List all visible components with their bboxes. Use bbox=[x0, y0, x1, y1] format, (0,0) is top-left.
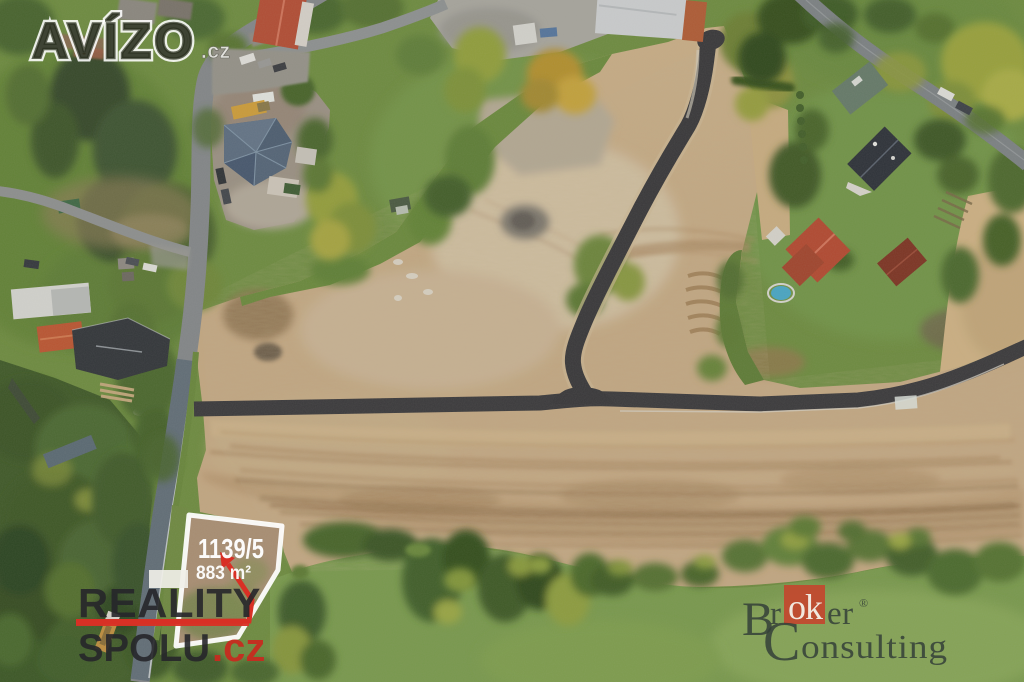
svg-text:AVÍZO: AVÍZO bbox=[32, 13, 196, 69]
svg-text:.cz: .cz bbox=[212, 626, 265, 670]
svg-text:er: er bbox=[827, 596, 854, 632]
svg-text:SPOLU: SPOLU bbox=[78, 627, 210, 670]
svg-text:®: ® bbox=[859, 596, 868, 610]
svg-text:.cz: .cz bbox=[201, 40, 231, 63]
svg-text:C: C bbox=[763, 611, 800, 673]
svg-text:onsulting: onsulting bbox=[801, 629, 948, 666]
svg-text:1139/5: 1139/5 bbox=[198, 533, 264, 564]
